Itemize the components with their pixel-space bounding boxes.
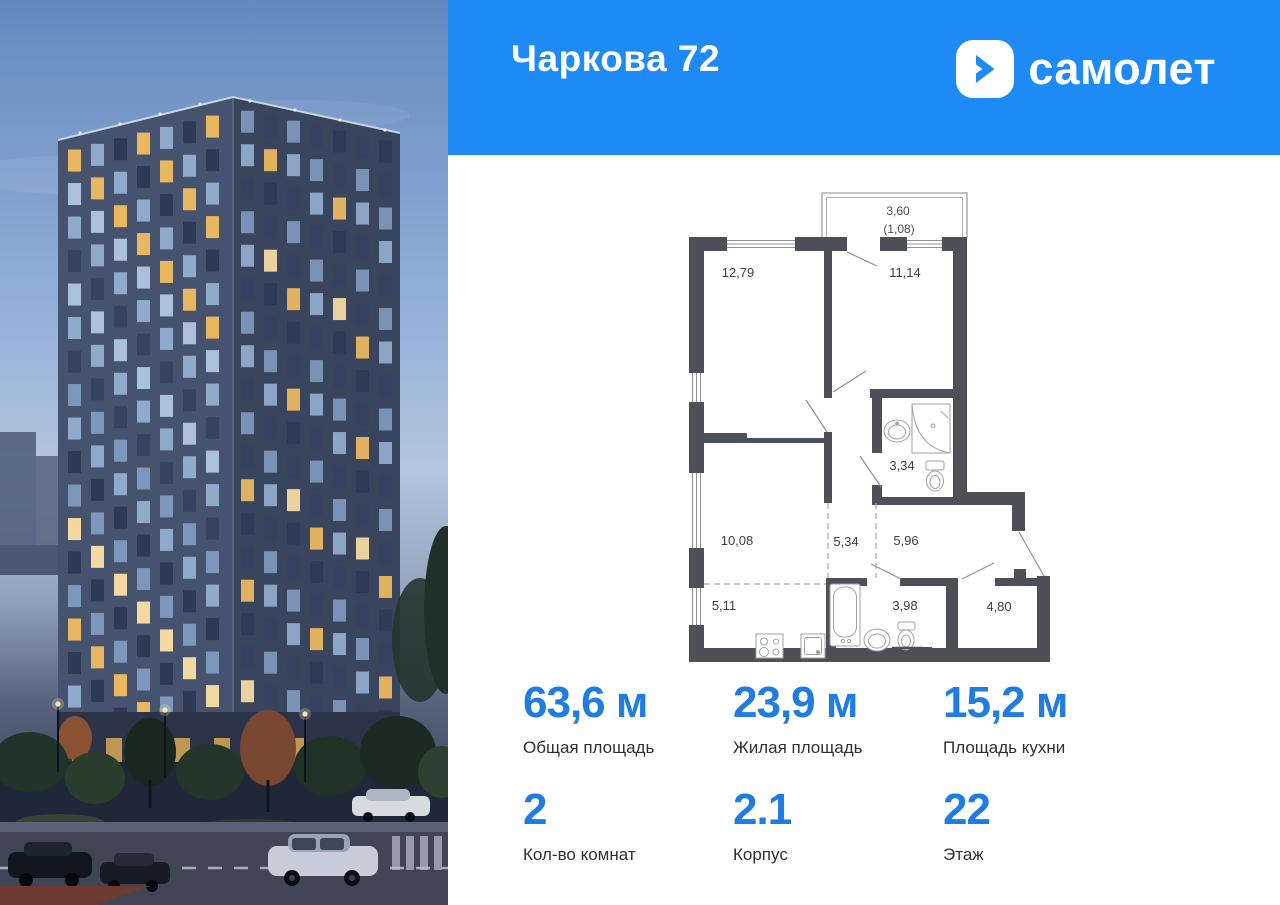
- stat-total-area: 63,6 м Общая площадь: [523, 681, 728, 758]
- building-photo: [0, 0, 448, 905]
- room-label-entry: 4,80: [986, 599, 1011, 614]
- listing-card: Чаркова 72 самолет: [0, 0, 1280, 905]
- tower: [58, 97, 400, 800]
- stat-label: Этаж: [943, 845, 1148, 865]
- stat-living-area: 23,9 м Жилая площадь: [733, 681, 938, 758]
- stat-value: 63,6 м: [523, 681, 728, 725]
- room-label-bathroom2: 3,98: [892, 598, 917, 613]
- room-label-bedroom1: 12,79: [722, 265, 755, 280]
- balcony-area-label: 3,60: [886, 204, 910, 218]
- stat-label: Площадь кухни: [943, 738, 1148, 758]
- stat-label: Кол-во комнат: [523, 845, 728, 865]
- room-label-living: 10,08: [721, 533, 754, 548]
- room-label-bedroom2: 11,14: [889, 265, 921, 280]
- page-title: Чаркова 72: [511, 38, 720, 80]
- floor-plan: 3,60 (1,08) 12,79 11,14 3,34 10,08 5,34 …: [680, 185, 1060, 675]
- stat-value: 2.1: [733, 788, 938, 832]
- stat-kitchen-area: 15,2 м Площадь кухни: [943, 681, 1148, 758]
- room-label-kitchen: 5,11: [712, 598, 736, 613]
- stat-label: Корпус: [733, 845, 938, 865]
- room-label-bathroom: 3,34: [889, 458, 914, 473]
- samolet-icon: [956, 40, 1014, 98]
- header: Чаркова 72 самолет: [448, 0, 1280, 155]
- stat-building: 2.1 Корпус: [733, 788, 938, 865]
- room-label-hall-right: 5,96: [893, 533, 918, 548]
- stat-floor: 22 Этаж: [943, 788, 1148, 865]
- balcony-reduced-label: (1,08): [883, 222, 914, 236]
- brand-logo: самолет: [956, 40, 1216, 98]
- room-label-hall-left: 5,34: [833, 534, 858, 549]
- brand-name: самолет: [1028, 40, 1216, 98]
- stat-label: Общая площадь: [523, 738, 728, 758]
- stat-label: Жилая площадь: [733, 738, 938, 758]
- stat-value: 22: [943, 788, 1148, 832]
- stat-value: 23,9 м: [733, 681, 938, 725]
- stat-value: 15,2 м: [943, 681, 1148, 725]
- stat-value: 2: [523, 788, 728, 832]
- stat-rooms: 2 Кол-во комнат: [523, 788, 728, 865]
